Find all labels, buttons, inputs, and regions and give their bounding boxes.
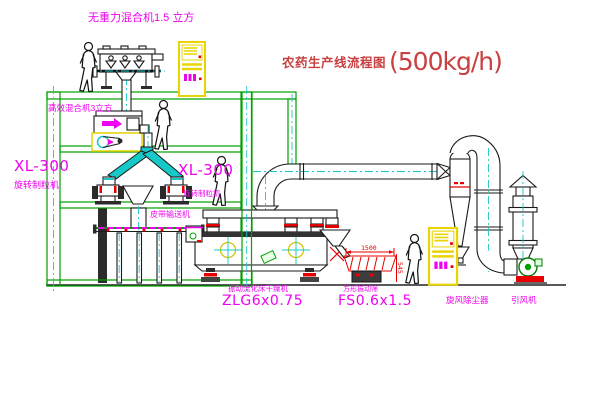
person-figure — [406, 235, 423, 284]
induced-draft-fan — [504, 258, 547, 283]
label-granulator-center-name: 旋转制粒机 — [183, 190, 221, 198]
diagram-title: 农药生产线流程图 (500kg/h) — [282, 47, 502, 76]
label-dryer-name: 振动流化床干燥机 — [228, 285, 288, 293]
label-granulator-left-name: 旋转制粒机 — [14, 181, 59, 190]
person-figure — [155, 101, 172, 150]
label-belt-conveyor: 皮带输送机 — [150, 211, 190, 219]
title-capacity: (500kg/h) — [389, 47, 502, 76]
process-flow-diagram: 1500 545 — [0, 0, 600, 403]
label-high-eff-mixer: 高效混合机3立方 — [48, 104, 112, 113]
label-dryer-model: ZLG6x0.75 — [222, 294, 303, 308]
label-granulator-center-model: XL-300 — [178, 163, 233, 178]
dimension-screen-width: 1500 — [361, 244, 377, 252]
exhaust-duct — [253, 163, 450, 216]
person-figure — [80, 43, 97, 92]
control-cabinet-upper — [179, 42, 205, 96]
title-text: 农药生产线流程图 — [282, 52, 386, 71]
downcomer-duct — [474, 148, 504, 273]
high-efficiency-mixer — [92, 111, 152, 151]
label-screen-name: 方形振动筛 — [343, 286, 378, 293]
vibrating-screen: 1500 545 — [344, 244, 404, 282]
granulator-left — [92, 177, 124, 205]
dimension-screen-height: 545 — [396, 262, 404, 274]
exhaust-stack — [509, 171, 537, 264]
control-cabinet-lower — [429, 228, 457, 285]
label-granulator-left-model: XL-300 — [14, 159, 69, 174]
label-fan: 引风机 — [511, 296, 537, 305]
label-screen-model: FS0.6x1.5 — [338, 294, 412, 308]
label-gravity-mixer: 无重力混合机1.5 立方 — [88, 13, 194, 24]
fluidized-bed-dryer — [185, 210, 337, 282]
label-cyclone: 旋风除尘器 — [446, 296, 489, 305]
